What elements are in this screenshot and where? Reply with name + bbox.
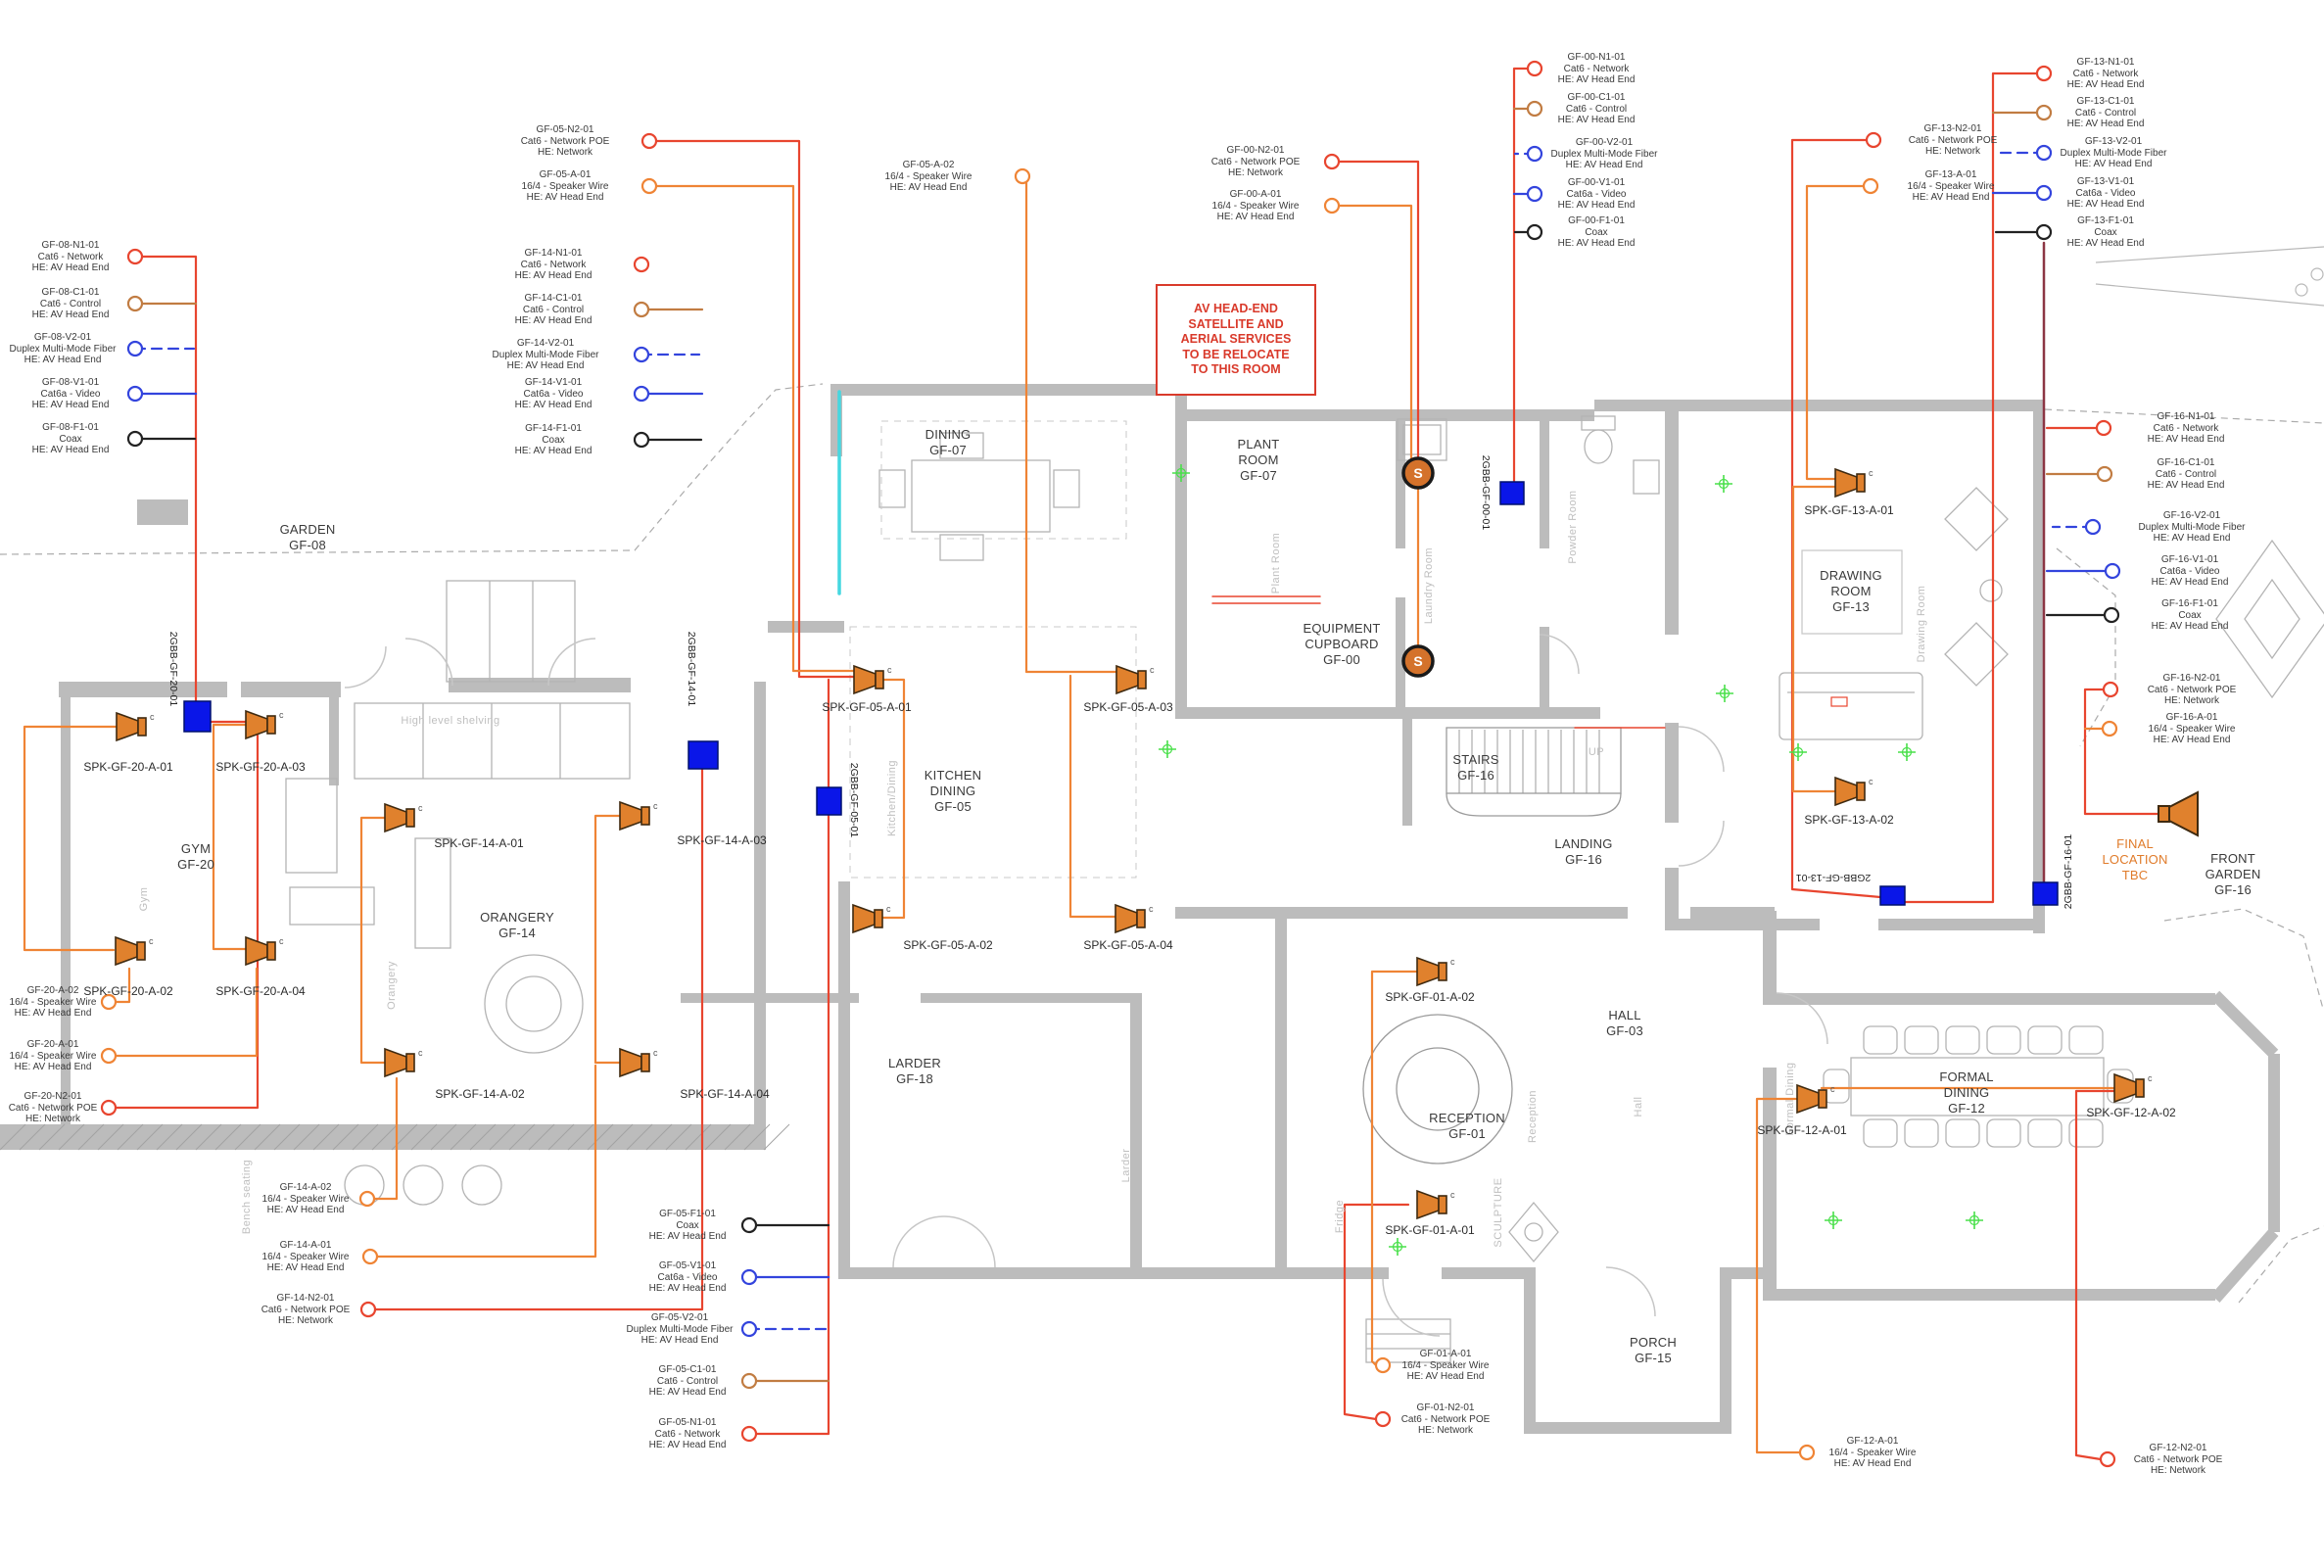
cable-label: GF-08-V1-01Cat6a - VideoHE: AV Head End <box>32 377 110 411</box>
room-label-line: FRONT <box>2205 851 2261 867</box>
cable-label-line: 16/4 - Speaker Wire <box>885 170 972 182</box>
cable-label-line: HE: AV Head End <box>32 309 110 321</box>
cable-label-line: HE: Network <box>2134 1465 2223 1477</box>
cable-label-line: GF-16-N1-01 <box>2148 411 2225 423</box>
cable-label-line: Cat6a - Video <box>515 388 593 400</box>
cable-label-line: GF-16-F1-01 <box>2152 598 2229 610</box>
cable-label-line: HE: Network <box>9 1114 98 1125</box>
cable-label: GF-00-N1-01Cat6 - NetworkHE: AV Head End <box>1558 52 1636 86</box>
room-label-line: GF-16 <box>1452 768 1498 784</box>
cable-label-line: GF-05-C1-01 <box>649 1364 727 1376</box>
cable-label: GF-13-V2-01Duplex Multi-Mode FiberHE: AV… <box>2061 136 2167 170</box>
speaker-label: SPK-GF-20-A-02 <box>83 984 172 998</box>
cable-label-line: GF-13-F1-01 <box>2067 215 2145 227</box>
cable-label-line: GF-05-V1-01 <box>649 1260 727 1272</box>
room-label-line: RECEPTION <box>1429 1111 1505 1126</box>
cable-label: GF-00-V2-01Duplex Multi-Mode FiberHE: AV… <box>1551 137 1658 171</box>
arch-note-label: Plant Room <box>1270 533 1282 594</box>
cable-label-line: Cat6a - Video <box>1558 188 1636 200</box>
cable-label-line: GF-08-N1-01 <box>32 240 110 252</box>
cable-label-line: Cat6a - Video <box>649 1271 727 1283</box>
room-label: HALLGF-03 <box>1606 1008 1643 1039</box>
speaker-label: SPK-GF-20-A-01 <box>83 760 172 774</box>
cable-label: GF-14-V1-01Cat6a - VideoHE: AV Head End <box>515 377 593 411</box>
cable-label: GF-13-V1-01Cat6a - VideoHE: AV Head End <box>2067 176 2145 211</box>
cable-label-line: HE: AV Head End <box>262 1262 350 1274</box>
cable-label-line: Cat6a - Video <box>2152 565 2229 577</box>
speaker-label: SPK-GF-14-A-04 <box>680 1087 769 1101</box>
cable-label-line: GF-05-N2-01 <box>521 124 610 136</box>
cable-label-line: GF-12-A-01 <box>1829 1436 1917 1448</box>
cable-label-line: HE: AV Head End <box>1402 1371 1490 1383</box>
cable-label-line: Cat6 - Network <box>515 259 593 270</box>
room-label-line: ORANGERY <box>480 910 554 926</box>
cable-label-line: GF-08-V2-01 <box>10 332 117 344</box>
cable-label: GF-16-A-0116/4 - Speaker WireHE: AV Head… <box>2149 712 2236 746</box>
floorplan-canvas: ccccccccccccccccccSS GF-08-N1-01Cat6 - N… <box>0 0 2324 1568</box>
cable-label-line: HE: AV Head End <box>2148 434 2225 446</box>
cable-label-line: HE: AV Head End <box>649 1283 727 1295</box>
cable-label: GF-14-A-0116/4 - Speaker WireHE: AV Head… <box>262 1240 350 1274</box>
cable-label-line: GF-05-N1-01 <box>649 1417 727 1429</box>
arch-note-label: Powder Room <box>1567 490 1579 563</box>
cable-label: GF-08-F1-01CoaxHE: AV Head End <box>32 422 110 456</box>
cable-label-line: GF-13-N2-01 <box>1909 123 1998 135</box>
cable-label-line: HE: Network <box>261 1315 351 1327</box>
cable-label-line: HE: AV Head End <box>1212 212 1300 223</box>
room-label-line: EQUIPMENT <box>1303 621 1380 637</box>
cable-label-line: Duplex Multi-Mode Fiber <box>10 343 117 355</box>
note-line: AERIAL SERVICES <box>1158 332 1314 348</box>
cable-label: GF-00-F1-01CoaxHE: AV Head End <box>1558 215 1636 250</box>
cable-label-line: HE: AV Head End <box>10 1008 97 1020</box>
room-label-line: GF-20 <box>177 857 214 873</box>
labels-layer: GF-08-N1-01Cat6 - NetworkHE: AV Head End… <box>0 0 2324 1568</box>
cable-label-line: GF-16-A-01 <box>2149 712 2236 724</box>
cable-label-line: GF-14-F1-01 <box>515 423 593 435</box>
cable-label-line: GF-20-A-01 <box>10 1039 97 1051</box>
cable-label-line: Cat6a - Video <box>2067 187 2145 199</box>
speaker-label: SPK-GF-13-A-02 <box>1804 813 1893 827</box>
speaker-label: SPK-GF-05-A-03 <box>1083 700 1172 714</box>
cable-label-line: HE: AV Head End <box>2152 621 2229 633</box>
speaker-label: SPK-GF-12-A-01 <box>1757 1123 1846 1137</box>
room-label: DRAWINGROOMGF-13 <box>1820 568 1882 615</box>
cable-label: GF-05-V1-01Cat6a - VideoHE: AV Head End <box>649 1260 727 1295</box>
room-label: GYMGF-20 <box>177 841 214 873</box>
arch-note-label: Fridge <box>1334 1200 1346 1233</box>
cable-label-line: GF-16-C1-01 <box>2148 457 2225 469</box>
cable-label-line: HE: AV Head End <box>522 192 609 204</box>
cable-label: GF-00-A-0116/4 - Speaker WireHE: AV Head… <box>1212 189 1300 223</box>
cable-label-line: HE: AV Head End <box>2067 119 2145 130</box>
room-label-line: GF-01 <box>1429 1126 1505 1142</box>
panel-label: 2GBB-GF-20-01 <box>167 632 179 706</box>
room-label-line: KITCHEN <box>925 768 981 784</box>
cable-label-line: GF-05-F1-01 <box>649 1209 727 1220</box>
cable-label-line: HE: AV Head End <box>1829 1458 1917 1470</box>
cable-label: GF-14-N1-01Cat6 - NetworkHE: AV Head End <box>515 248 593 282</box>
room-label-line: CUPBOARD <box>1303 637 1380 652</box>
cable-label-line: HE: Network <box>2148 695 2237 707</box>
cable-label-line: 16/4 - Speaker Wire <box>262 1251 350 1262</box>
arch-note-label: Gym <box>138 887 150 912</box>
cable-label-line: 16/4 - Speaker Wire <box>1402 1359 1490 1371</box>
cable-label-line: Cat6 - Network <box>32 251 110 262</box>
cable-label-line: GF-14-A-02 <box>262 1182 350 1194</box>
room-label-line: TBC <box>2102 868 2167 883</box>
cable-label-line: HE: AV Head End <box>32 400 110 411</box>
room-label-line: GF-07 <box>925 443 972 458</box>
cable-label-line: Coax <box>32 433 110 445</box>
room-label: LANDINGGF-16 <box>1554 836 1612 868</box>
cable-label-line: GF-00-V1-01 <box>1558 177 1636 189</box>
cable-label-line: GF-01-A-01 <box>1402 1349 1490 1360</box>
cable-label-line: HE: Network <box>521 147 610 159</box>
room-label-line: GF-00 <box>1303 652 1380 668</box>
cable-label-line: HE: AV Head End <box>2139 533 2246 545</box>
speaker-label: SPK-GF-05-A-02 <box>903 938 992 952</box>
cable-label: GF-05-V2-01Duplex Multi-Mode FiberHE: AV… <box>627 1312 734 1347</box>
room-label-line: GF-05 <box>925 799 981 815</box>
cable-label-line: HE: AV Head End <box>1558 238 1636 250</box>
room-label-line: DINING <box>925 427 972 443</box>
cable-label-line: 16/4 - Speaker Wire <box>1212 200 1300 212</box>
panel-label: 2GBB-GF-14-01 <box>686 632 697 706</box>
cable-label-line: HE: AV Head End <box>515 446 593 457</box>
room-label-line: GF-16 <box>1554 852 1612 868</box>
cable-label-line: HE: AV Head End <box>515 270 593 282</box>
note-line: TO BE RELOCATE <box>1158 348 1314 363</box>
speaker-label: SPK-GF-12-A-02 <box>2086 1106 2175 1119</box>
cable-label-line: GF-00-V2-01 <box>1551 137 1658 149</box>
cable-label-line: HE: AV Head End <box>2067 199 2145 211</box>
note-line: TO THIS ROOM <box>1158 362 1314 378</box>
panel-label: 2GBB-GF-00-01 <box>1480 455 1492 530</box>
cable-label-line: Cat6 - Control <box>649 1375 727 1387</box>
cable-label-line: 16/4 - Speaker Wire <box>1908 180 1995 192</box>
cable-label-line: Cat6 - Network <box>649 1428 727 1440</box>
cable-label-line: Cat6 - Network POE <box>2148 684 2237 695</box>
room-label-line: ROOM <box>1238 452 1280 468</box>
cable-label: GF-05-F1-01CoaxHE: AV Head End <box>649 1209 727 1243</box>
room-label-line: PLANT <box>1238 437 1280 452</box>
cable-label: GF-16-N2-01Cat6 - Network POEHE: Network <box>2148 673 2237 707</box>
cable-label-line: GF-08-C1-01 <box>32 287 110 299</box>
cable-label-line: 16/4 - Speaker Wire <box>2149 723 2236 735</box>
cable-label-line: Coax <box>515 434 593 446</box>
cable-label-line: HE: AV Head End <box>2148 480 2225 492</box>
cable-label-line: Cat6a - Video <box>32 388 110 400</box>
cable-label-line: HE: AV Head End <box>627 1335 734 1347</box>
cable-label: GF-14-C1-01Cat6 - ControlHE: AV Head End <box>515 293 593 327</box>
cable-label-line: HE: AV Head End <box>32 445 110 456</box>
cable-label-line: GF-16-V1-01 <box>2152 554 2229 566</box>
cable-label-line: HE: AV Head End <box>2061 159 2167 170</box>
room-label-line: GYM <box>177 841 214 857</box>
cable-label: GF-05-A-0216/4 - Speaker WireHE: AV Head… <box>885 160 972 194</box>
panel-label: 2GBB-GF-13-01 <box>1796 872 1871 883</box>
room-label: FINALLOCATIONTBC <box>2102 836 2167 883</box>
cable-label: GF-05-A-0116/4 - Speaker WireHE: AV Head… <box>522 169 609 204</box>
room-label-line: PORCH <box>1630 1335 1677 1351</box>
cable-label: GF-16-V1-01Cat6a - VideoHE: AV Head End <box>2152 554 2229 589</box>
cable-label: GF-16-V2-01Duplex Multi-Mode FiberHE: AV… <box>2139 510 2246 545</box>
cable-label-line: GF-00-A-01 <box>1212 189 1300 201</box>
room-label-line: GARDEN <box>280 522 336 538</box>
cable-label: GF-05-N2-01Cat6 - Network POEHE: Network <box>521 124 610 159</box>
cable-label: GF-08-V2-01Duplex Multi-Mode FiberHE: AV… <box>10 332 117 366</box>
cable-label-line: Cat6 - Control <box>32 298 110 309</box>
room-label: EQUIPMENTCUPBOARDGF-00 <box>1303 621 1380 668</box>
cable-label-line: Duplex Multi-Mode Fiber <box>2139 521 2246 533</box>
room-label-line: GF-15 <box>1630 1351 1677 1366</box>
room-label-line: GF-18 <box>888 1071 941 1087</box>
cable-label: GF-08-C1-01Cat6 - ControlHE: AV Head End <box>32 287 110 321</box>
cable-label-line: Cat6 - Control <box>2148 468 2225 480</box>
room-label-line: GF-03 <box>1606 1023 1643 1039</box>
arch-note-label: Laundry Room <box>1423 547 1435 624</box>
cable-label-line: HE: Network <box>1211 167 1301 179</box>
arch-note-label: Bench seating <box>241 1160 253 1234</box>
cable-label-line: GF-05-A-01 <box>522 169 609 181</box>
arch-note-label: High level shelving <box>401 715 499 727</box>
cable-label: GF-13-F1-01CoaxHE: AV Head End <box>2067 215 2145 250</box>
cable-label: GF-00-V1-01Cat6a - VideoHE: AV Head End <box>1558 177 1636 212</box>
cable-label-line: HE: AV Head End <box>649 1387 727 1399</box>
cable-label-line: HE: AV Head End <box>493 360 599 372</box>
cable-label-line: HE: AV Head End <box>515 315 593 327</box>
cable-label-line: GF-16-V2-01 <box>2139 510 2246 522</box>
cable-label-line: GF-13-V1-01 <box>2067 176 2145 188</box>
room-label-line: DINING <box>925 784 981 799</box>
cable-label: GF-05-C1-01Cat6 - ControlHE: AV Head End <box>649 1364 727 1399</box>
cable-label-line: Cat6 - Network POE <box>521 135 610 147</box>
cable-label: GF-01-N2-01Cat6 - Network POEHE: Network <box>1401 1402 1491 1437</box>
room-label: GARDENGF-08 <box>280 522 336 553</box>
cable-label-line: HE: AV Head End <box>2067 79 2145 91</box>
cable-label: GF-13-N1-01Cat6 - NetworkHE: AV Head End <box>2067 57 2145 91</box>
cable-label-line: GF-05-V2-01 <box>627 1312 734 1324</box>
cable-label-line: Coax <box>649 1219 727 1231</box>
cable-label-line: Duplex Multi-Mode Fiber <box>2061 147 2167 159</box>
cable-label: GF-13-N2-01Cat6 - Network POEHE: Network <box>1909 123 1998 158</box>
room-label: FORMALDININGGF-12 <box>1939 1069 1993 1117</box>
arch-note-label: Drawing Room <box>1916 586 1927 663</box>
cable-label-line: Cat6 - Network POE <box>2134 1453 2223 1465</box>
speaker-label: SPK-GF-14-A-03 <box>677 833 766 847</box>
cable-label: GF-16-N1-01Cat6 - NetworkHE: AV Head End <box>2148 411 2225 446</box>
cable-label: GF-20-A-0116/4 - Speaker WireHE: AV Head… <box>10 1039 97 1073</box>
cable-label-line: HE: AV Head End <box>32 262 110 274</box>
room-label-line: LOCATION <box>2102 852 2167 868</box>
cable-label-line: HE: AV Head End <box>649 1231 727 1243</box>
arch-note-label: Orangery <box>386 961 398 1010</box>
cable-label-line: 16/4 - Speaker Wire <box>522 180 609 192</box>
room-label-line: GF-13 <box>1820 599 1882 615</box>
cable-label-line: HE: Network <box>1401 1425 1491 1437</box>
cable-label-line: HE: AV Head End <box>2149 735 2236 746</box>
cable-label-line: HE: AV Head End <box>1551 160 1658 171</box>
speaker-label: SPK-GF-01-A-01 <box>1385 1223 1474 1237</box>
room-label-line: STAIRS <box>1452 752 1498 768</box>
cable-label-line: GF-00-N1-01 <box>1558 52 1636 64</box>
cable-label-line: Cat6 - Network POE <box>9 1102 98 1114</box>
cable-label-line: Duplex Multi-Mode Fiber <box>627 1323 734 1335</box>
cable-label-line: GF-05-A-02 <box>885 160 972 171</box>
cable-label: GF-16-C1-01Cat6 - ControlHE: AV Head End <box>2148 457 2225 492</box>
note-line: AV HEAD-END <box>1158 302 1314 317</box>
cable-label-line: 16/4 - Speaker Wire <box>262 1193 350 1205</box>
cable-label-line: Coax <box>2152 609 2229 621</box>
room-label: RECEPTIONGF-01 <box>1429 1111 1505 1142</box>
panel-label: 2GBB-GF-16-01 <box>2063 834 2074 909</box>
cable-label-line: Cat6 - Control <box>515 304 593 315</box>
cable-label-line: GF-16-N2-01 <box>2148 673 2237 685</box>
cable-label-line: Cat6 - Network <box>1558 63 1636 74</box>
cable-label-line: GF-00-N2-01 <box>1211 145 1301 157</box>
room-label: STAIRSGF-16 <box>1452 752 1498 784</box>
room-label: KITCHENDININGGF-05 <box>925 768 981 815</box>
room-label: FRONTGARDENGF-16 <box>2205 851 2261 898</box>
cable-label-line: HE: AV Head End <box>2152 577 2229 589</box>
cable-label-line: Coax <box>1558 226 1636 238</box>
speaker-label: SPK-GF-01-A-02 <box>1385 990 1474 1004</box>
relocation-note: AV HEAD-END SATELLITE AND AERIAL SERVICE… <box>1156 284 1316 396</box>
room-label-line: ROOM <box>1820 584 1882 599</box>
speaker-label: SPK-GF-13-A-01 <box>1804 503 1893 517</box>
room-label-line: HALL <box>1606 1008 1643 1023</box>
room-label: PLANTROOMGF-07 <box>1238 437 1280 484</box>
cable-label: GF-08-N1-01Cat6 - NetworkHE: AV Head End <box>32 240 110 274</box>
cable-label-line: GF-13-A-01 <box>1908 169 1995 181</box>
cable-label: GF-01-A-0116/4 - Speaker WireHE: AV Head… <box>1402 1349 1490 1383</box>
cable-label-line: GF-12-N2-01 <box>2134 1443 2223 1454</box>
cable-label-line: HE: AV Head End <box>885 182 972 194</box>
room-label: LARDERGF-18 <box>888 1056 941 1087</box>
room-label-line: GARDEN <box>2205 867 2261 882</box>
cable-label-line: Cat6 - Network POE <box>1401 1413 1491 1425</box>
cable-label-line: HE: AV Head End <box>1558 200 1636 212</box>
cable-label-line: GF-13-V2-01 <box>2061 136 2167 148</box>
cable-label-line: HE: Network <box>1909 146 1998 158</box>
cable-label: GF-14-N2-01Cat6 - Network POEHE: Network <box>261 1293 351 1327</box>
cable-label-line: GF-00-C1-01 <box>1558 92 1636 104</box>
cable-label-line: GF-14-N1-01 <box>515 248 593 260</box>
room-label-line: LARDER <box>888 1056 941 1071</box>
speaker-label: SPK-GF-20-A-04 <box>215 984 305 998</box>
arch-note-label: Larder <box>1120 1149 1132 1183</box>
cable-label-line: GF-13-N1-01 <box>2067 57 2145 69</box>
room-label-line: GF-12 <box>1939 1101 1993 1117</box>
cable-label: GF-12-A-0116/4 - Speaker WireHE: AV Head… <box>1829 1436 1917 1470</box>
cable-label-line: GF-08-V1-01 <box>32 377 110 389</box>
cable-label-line: Coax <box>2067 226 2145 238</box>
arch-note-label: Hall <box>1633 1097 1644 1117</box>
room-label: DININGGF-07 <box>925 427 972 458</box>
cable-label-line: GF-13-C1-01 <box>2067 96 2145 108</box>
cable-label: GF-16-F1-01CoaxHE: AV Head End <box>2152 598 2229 633</box>
room-label-line: GF-16 <box>2205 882 2261 898</box>
room-label: ORANGERYGF-14 <box>480 910 554 941</box>
cable-label-line: Duplex Multi-Mode Fiber <box>493 349 599 360</box>
cable-label-line: HE: AV Head End <box>2067 238 2145 250</box>
arch-note-label: Reception <box>1527 1090 1539 1143</box>
cable-label: GF-00-N2-01Cat6 - Network POEHE: Network <box>1211 145 1301 179</box>
cable-label: GF-12-N2-01Cat6 - Network POEHE: Network <box>2134 1443 2223 1477</box>
cable-label-line: HE: AV Head End <box>262 1205 350 1216</box>
cable-label-line: HE: AV Head End <box>10 355 117 366</box>
cable-label: GF-20-N2-01Cat6 - Network POEHE: Network <box>9 1091 98 1125</box>
cable-label: GF-00-C1-01Cat6 - ControlHE: AV Head End <box>1558 92 1636 126</box>
cable-label-line: 16/4 - Speaker Wire <box>1829 1447 1917 1458</box>
room-label-line: FORMAL <box>1939 1069 1993 1085</box>
cable-label-line: Duplex Multi-Mode Fiber <box>1551 148 1658 160</box>
cable-label-line: HE: AV Head End <box>515 400 593 411</box>
cable-label-line: Cat6 - Network POE <box>1909 134 1998 146</box>
cable-label-line: GF-14-C1-01 <box>515 293 593 305</box>
speaker-label: SPK-GF-05-A-01 <box>822 700 911 714</box>
arch-note-label: Kitchen/Dining <box>886 760 898 836</box>
cable-label-line: GF-14-A-01 <box>262 1240 350 1252</box>
cable-label: GF-14-F1-01CoaxHE: AV Head End <box>515 423 593 457</box>
room-label: PORCHGF-15 <box>1630 1335 1677 1366</box>
cable-label-line: GF-14-V2-01 <box>493 338 599 350</box>
note-line: SATELLITE AND <box>1158 317 1314 333</box>
cable-label-line: Cat6 - Control <box>1558 103 1636 115</box>
cable-label-line: HE: AV Head End <box>1908 192 1995 204</box>
room-label-line: FINAL <box>2102 836 2167 852</box>
speaker-label: SPK-GF-14-A-01 <box>434 836 523 850</box>
speaker-label: SPK-GF-14-A-02 <box>435 1087 524 1101</box>
cable-label-line: GF-00-F1-01 <box>1558 215 1636 227</box>
cable-label-line: Cat6 - Network POE <box>261 1304 351 1315</box>
room-label-line: GF-14 <box>480 926 554 941</box>
cable-label-line: GF-08-F1-01 <box>32 422 110 434</box>
cable-label: GF-13-C1-01Cat6 - ControlHE: AV Head End <box>2067 96 2145 130</box>
cable-label: GF-13-A-0116/4 - Speaker WireHE: AV Head… <box>1908 169 1995 204</box>
room-label-line: DRAWING <box>1820 568 1882 584</box>
room-label-line: LANDING <box>1554 836 1612 852</box>
arch-note-label: UP <box>1589 746 1604 758</box>
cable-label-line: HE: AV Head End <box>649 1440 727 1451</box>
room-label-line: DINING <box>1939 1085 1993 1101</box>
cable-label-line: Cat6 - Control <box>2067 107 2145 119</box>
room-label-line: GF-07 <box>1238 468 1280 484</box>
cable-label-line: GF-01-N2-01 <box>1401 1402 1491 1414</box>
cable-label: GF-14-A-0216/4 - Speaker WireHE: AV Head… <box>262 1182 350 1216</box>
cable-label-line: Cat6 - Network <box>2067 68 2145 79</box>
cable-label-line: Cat6 - Network <box>2148 422 2225 434</box>
speaker-label: SPK-GF-05-A-04 <box>1083 938 1172 952</box>
cable-label-line: HE: AV Head End <box>1558 74 1636 86</box>
cable-label-line: HE: AV Head End <box>10 1062 97 1073</box>
cable-label-line: GF-20-N2-01 <box>9 1091 98 1103</box>
cable-label: GF-05-N1-01Cat6 - NetworkHE: AV Head End <box>649 1417 727 1451</box>
speaker-label: SPK-GF-20-A-03 <box>215 760 305 774</box>
cable-label: GF-14-V2-01Duplex Multi-Mode FiberHE: AV… <box>493 338 599 372</box>
panel-label: 2GBB-GF-05-01 <box>848 763 860 837</box>
arch-note-label: SCULPTURE <box>1493 1177 1504 1247</box>
cable-label-line: HE: AV Head End <box>1558 115 1636 126</box>
cable-label-line: GF-14-N2-01 <box>261 1293 351 1305</box>
cable-label-line: GF-14-V1-01 <box>515 377 593 389</box>
room-label-line: GF-08 <box>280 538 336 553</box>
cable-label-line: 16/4 - Speaker Wire <box>10 1050 97 1062</box>
cable-label-line: Cat6 - Network POE <box>1211 156 1301 167</box>
